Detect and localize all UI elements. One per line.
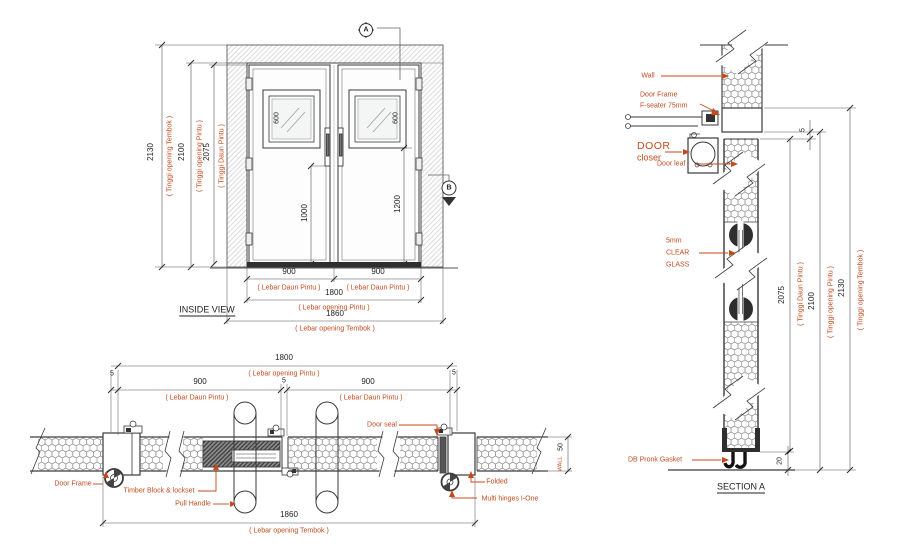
dim-leaf-height-label: ( Tinggi Daun Pintu ) <box>219 124 226 188</box>
door-leaf-section <box>713 139 767 467</box>
plan-dim-gap-right: 5 <box>452 370 456 377</box>
dim-wall-width-label: ( Lebar opening Tembok ) <box>295 326 375 333</box>
dim-mid-right: 1200 <box>394 195 402 213</box>
plan-dim-wall-thickness: 50 <box>558 443 565 451</box>
dim-wall-height: 2130 <box>147 143 155 161</box>
drawing-linework <box>0 0 900 555</box>
dim-leaf-width-left-label: ( Lebar Daun Pintu ) <box>257 285 320 292</box>
dim-window-right: 600 <box>393 112 400 124</box>
label-wall: Wall <box>641 73 654 80</box>
dim-wall-height-label: ( Tinggi opening Tembok ) <box>167 116 174 196</box>
section-dim-bottom-gap: 20 <box>777 457 784 465</box>
label-glass-3: GLASS <box>666 262 689 269</box>
section-dim-leaf-height-label: ( Tinggi Daun Pintu ) <box>798 262 805 326</box>
section-dim-leaf-height: 2075 <box>778 286 786 304</box>
plan-view-drawing <box>30 402 548 513</box>
label-multi-hinges: Multi hinges I-One <box>482 496 539 503</box>
label-door-seal: Door seal <box>367 422 397 429</box>
plan-dim-leaf-right-label: ( Lebar Daun Pintu ) <box>339 395 402 402</box>
dim-opening-width: 1800 <box>325 289 343 297</box>
dim-leaf-width-right-label: ( Lebar Daun Pintu ) <box>346 285 409 292</box>
plan-dim-wall-thickness-label: WALL <box>558 457 564 472</box>
door-frame-right-plan <box>448 433 475 475</box>
label-timber-block: Timber Block & lockset <box>124 488 195 495</box>
dim-opening-height: 2100 <box>178 143 186 161</box>
label-section-door-frame-2: F-seater 75mm <box>640 103 687 110</box>
dim-leaf-width-left: 900 <box>282 268 295 276</box>
dim-leaf-width-right: 900 <box>371 268 384 276</box>
door-frame-section <box>722 108 762 132</box>
door-leaf-left <box>249 65 330 264</box>
dim-leaf-height: 2075 <box>203 143 211 161</box>
section-a-title: SECTION A <box>717 483 765 494</box>
section-dim-wall-height: 2130 <box>838 279 846 297</box>
label-door-frame: Door Frame <box>54 481 91 488</box>
dim-window-left: 600 <box>274 112 281 124</box>
marker-a-letter: A <box>363 27 368 34</box>
dim-mid-left: 1000 <box>301 204 309 222</box>
plan-dim-leaf-right: 900 <box>361 378 374 386</box>
plan-dim-gap-left: 5 <box>110 371 114 378</box>
plan-dim-wall-width: 1860 <box>280 511 298 519</box>
label-gasket: DB Pronk Gasket <box>628 457 682 464</box>
folded-edge <box>440 437 446 473</box>
door-leaf-right <box>338 65 419 264</box>
plan-dim-leaf-left-label: ( Lebar Daun Pintu ) <box>165 395 228 402</box>
label-folded: Folded <box>486 479 507 486</box>
label-glass-2: CLEAR <box>666 250 689 257</box>
section-dim-wall-height-label: ( Tinggi opening Tembok ) <box>858 250 865 330</box>
multi-hinge-plan <box>442 474 459 491</box>
door-frame-left-plan <box>103 421 142 487</box>
inside-view-title: INSIDE VIEW <box>179 306 235 317</box>
marker-b-letter: B <box>446 185 451 192</box>
section-dim-opening-height-label: ( Tinggi opening Pintu ) <box>828 266 835 338</box>
door-detail-drawing: 2130 ( Tinggi opening Tembok ) 2100 ( Ti… <box>0 0 900 555</box>
section-dim-top-gap: 5 <box>800 128 807 132</box>
label-glass-1: 5mm <box>666 238 682 245</box>
label-pull-handle: Pull Handle <box>175 501 211 508</box>
dim-wall-width: 1860 <box>326 310 344 318</box>
plan-dim-opening-width: 1800 <box>275 354 293 362</box>
plan-dim-gap-center: 5 <box>282 378 286 385</box>
plan-dim-leaf-left: 900 <box>193 378 206 386</box>
plan-dim-wall-width-label: ( Lebar opening Tembok ) <box>249 528 329 535</box>
label-door-leaf: Door leaf <box>657 161 685 168</box>
label-section-door-frame-1: Door Frame <box>640 92 677 99</box>
section-dim-opening-height: 2100 <box>808 292 816 310</box>
plan-dim-opening-width-label: ( Lebar opening Pintu ) <box>248 371 319 378</box>
label-door-closer-1: DOOR <box>637 141 671 152</box>
inside-view-drawing <box>210 22 458 268</box>
